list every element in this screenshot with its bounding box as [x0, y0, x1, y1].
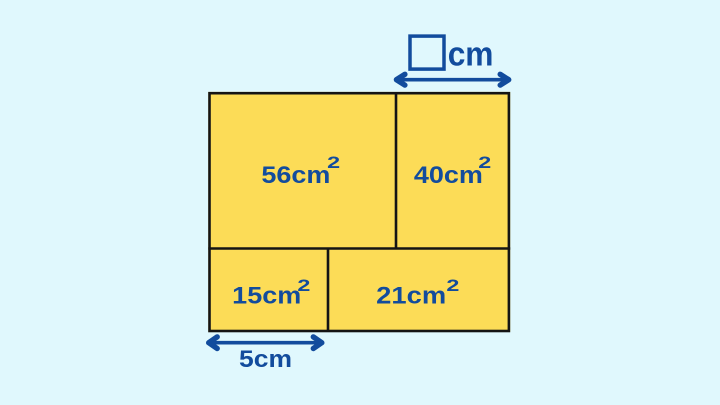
svg-text:40cm: 40cm: [414, 162, 483, 189]
svg-text:2: 2: [297, 276, 310, 295]
svg-text:56cm: 56cm: [261, 162, 330, 189]
svg-text:2: 2: [446, 276, 459, 295]
svg-text:15cm: 15cm: [232, 282, 301, 309]
svg-text:2: 2: [478, 153, 491, 172]
svg-text:5cm: 5cm: [239, 346, 292, 373]
svg-text:2: 2: [327, 153, 340, 172]
svg-text:21cm: 21cm: [376, 282, 446, 309]
svg-text:cm: cm: [448, 35, 494, 73]
